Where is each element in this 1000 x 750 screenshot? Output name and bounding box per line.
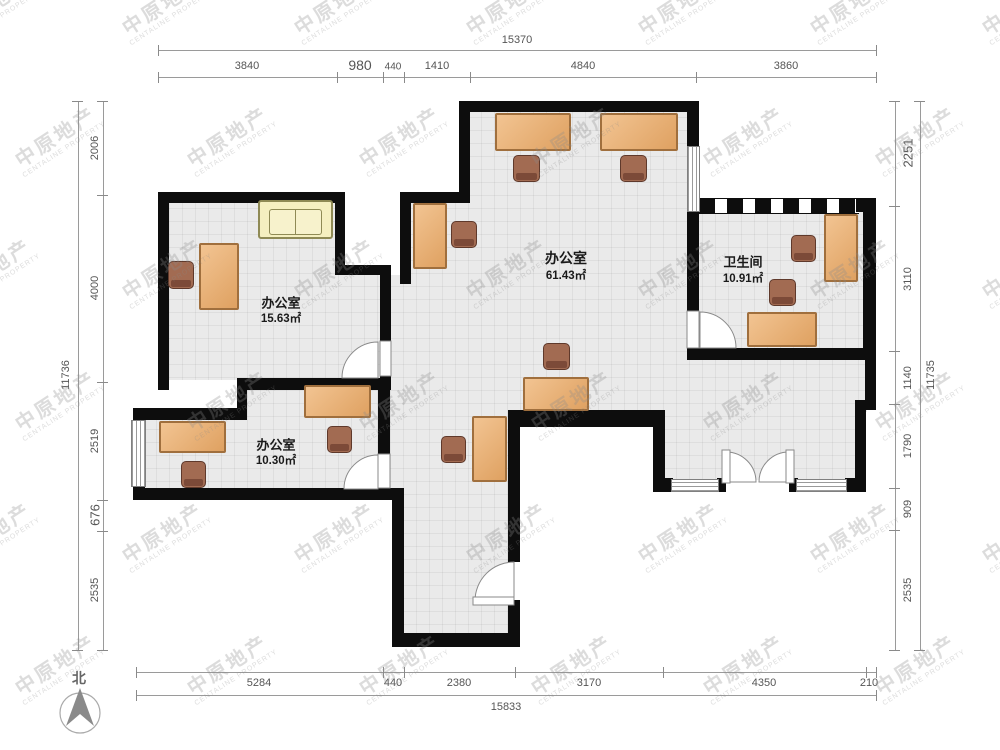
dim-tick xyxy=(97,101,108,102)
dim-value: 5284 xyxy=(247,677,271,689)
door-leaf xyxy=(473,597,514,605)
door-arc xyxy=(344,455,378,489)
dim-value: 15370 xyxy=(502,34,533,46)
room-label-west-office: 办公室 xyxy=(261,293,300,312)
dim-value: 3840 xyxy=(235,60,259,72)
dim-value: 2535 xyxy=(89,578,101,602)
dim-tick xyxy=(97,195,108,196)
dim-value: 2006 xyxy=(89,136,101,160)
door-leaf xyxy=(722,450,730,483)
dim-tick xyxy=(383,72,384,83)
dim-tick xyxy=(72,101,83,102)
dim-tick xyxy=(876,45,877,56)
dim-value: 1140 xyxy=(902,366,914,390)
door-leaf xyxy=(687,311,699,348)
dim-value: 676 xyxy=(88,504,103,526)
dim-line xyxy=(920,101,921,650)
dim-value: 440 xyxy=(385,62,402,73)
dim-line xyxy=(136,672,876,673)
dim-line xyxy=(895,101,896,650)
dim-tick xyxy=(876,690,877,701)
dim-tick xyxy=(889,650,900,651)
dim-tick xyxy=(97,650,108,651)
dim-tick xyxy=(404,72,405,83)
floorplan-page: 北 办公室 61.43㎡ 办公室 15.63㎡ 办公室 10.30㎡ 卫生间 1… xyxy=(0,0,1000,750)
dim-value: 909 xyxy=(902,500,914,518)
dim-value: 1410 xyxy=(425,60,449,72)
dim-tick xyxy=(97,500,108,501)
door-arc xyxy=(342,342,378,378)
dim-tick xyxy=(696,72,697,83)
dim-value: 2251 xyxy=(901,139,916,168)
room-label-south-office: 办公室 xyxy=(256,435,295,454)
dim-value: 440 xyxy=(384,677,402,689)
dim-tick xyxy=(889,404,900,405)
dim-tick xyxy=(889,206,900,207)
compass-north-label: 北 xyxy=(72,668,86,688)
dim-tick xyxy=(404,667,405,678)
dim-tick xyxy=(889,351,900,352)
dim-tick xyxy=(337,72,338,83)
dim-tick xyxy=(136,690,137,701)
room-area-south-office: 10.30㎡ xyxy=(256,452,296,468)
room-label-bathroom: 卫生间 xyxy=(723,252,762,271)
dim-line xyxy=(158,50,876,51)
dim-line xyxy=(136,695,876,696)
door-swings-layer xyxy=(0,0,1000,750)
dim-value: 210 xyxy=(860,677,878,689)
door-arc xyxy=(475,562,514,601)
room-area-west-office: 15.63㎡ xyxy=(261,310,301,326)
dim-tick xyxy=(158,72,159,83)
door-arc xyxy=(700,312,736,348)
dim-tick xyxy=(663,667,664,678)
dim-value: 2519 xyxy=(89,429,101,453)
door-leaf xyxy=(786,450,794,483)
door-leaf xyxy=(378,454,390,488)
dim-tick xyxy=(889,530,900,531)
dim-line xyxy=(78,101,79,650)
dim-tick xyxy=(470,72,471,83)
dim-line xyxy=(103,101,104,650)
room-label-main-office: 办公室 xyxy=(545,248,587,268)
dim-value: 2380 xyxy=(447,677,471,689)
dim-tick xyxy=(914,650,925,651)
dim-tick xyxy=(97,382,108,383)
dim-tick xyxy=(136,667,137,678)
dim-value: 11735 xyxy=(925,360,937,390)
dim-value: 2535 xyxy=(902,578,914,602)
door-arc xyxy=(759,452,789,482)
dim-tick xyxy=(876,72,877,83)
dim-tick xyxy=(72,650,83,651)
dim-tick xyxy=(914,101,925,102)
dim-value: 4840 xyxy=(571,60,595,72)
dim-value: 4350 xyxy=(752,677,776,689)
dim-value: 1790 xyxy=(902,434,914,458)
dim-value: 980 xyxy=(348,57,371,73)
dim-value: 3110 xyxy=(902,267,914,291)
room-area-bathroom: 10.91㎡ xyxy=(723,270,763,286)
door-leaf xyxy=(380,341,391,376)
dim-tick xyxy=(889,101,900,102)
dim-tick xyxy=(97,531,108,532)
dim-tick xyxy=(515,667,516,678)
dim-tick xyxy=(889,488,900,489)
dim-value: 4000 xyxy=(89,276,101,300)
dim-line xyxy=(158,77,876,78)
dim-value: 3170 xyxy=(577,677,601,689)
dim-value: 11736 xyxy=(60,360,72,390)
compass-icon xyxy=(60,688,100,733)
room-area-main-office: 61.43㎡ xyxy=(546,267,586,283)
dim-value: 3860 xyxy=(774,60,798,72)
dim-value: 15833 xyxy=(491,701,522,713)
dim-tick xyxy=(158,45,159,56)
